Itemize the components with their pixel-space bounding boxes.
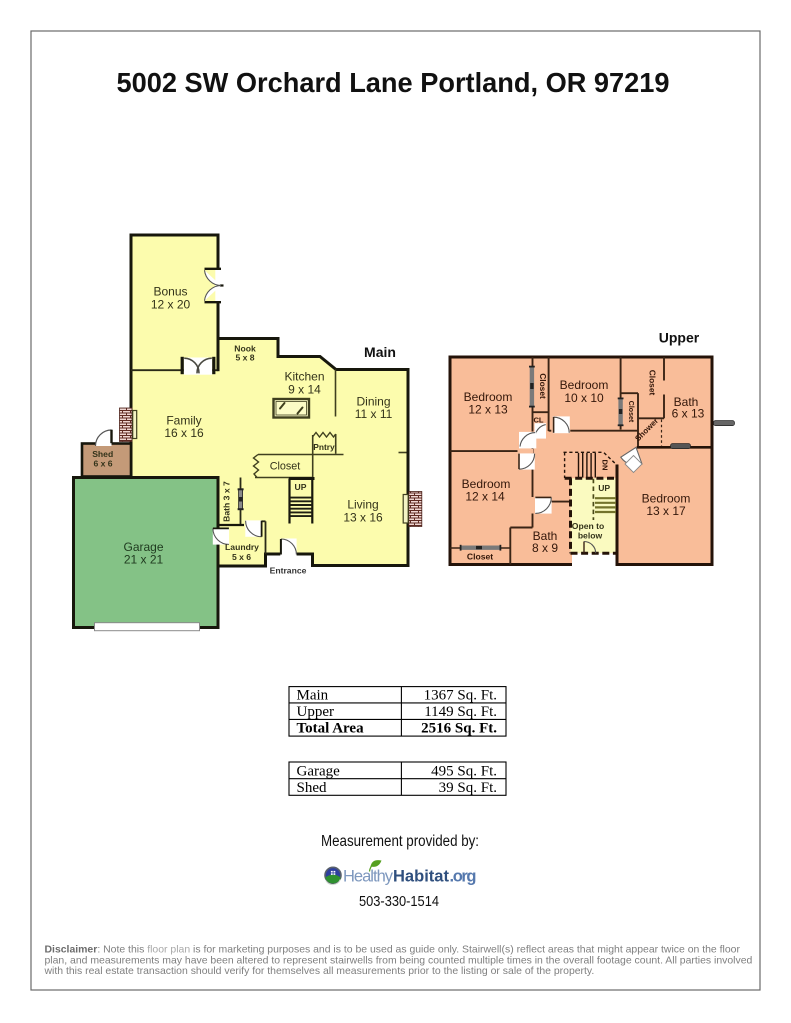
svg-text:plan, and measurements may hav: plan, and measurements may have been alt… xyxy=(45,955,753,966)
svg-text:Open to: Open to xyxy=(572,521,604,531)
svg-text:495 Sq. Ft.: 495 Sq. Ft. xyxy=(431,763,497,779)
svg-text:12 x 13: 12 x 13 xyxy=(468,403,508,417)
svg-text:11 x 11: 11 x 11 xyxy=(355,407,393,421)
svg-text:Living: Living xyxy=(347,498,378,512)
svg-text:Closet: Closet xyxy=(270,461,301,473)
svg-text:Laundry: Laundry xyxy=(225,542,259,552)
svg-text:Disclaimer: Note this floor pl: Disclaimer: Note this floor plan is for … xyxy=(45,945,741,956)
svg-text:Closet: Closet xyxy=(627,401,634,423)
svg-text:Bonus: Bonus xyxy=(153,285,187,299)
svg-text:Measurement provided by:: Measurement provided by: xyxy=(321,833,479,850)
svg-text:9 x 14: 9 x 14 xyxy=(288,383,321,397)
svg-text:Shed: Shed xyxy=(297,780,328,796)
svg-text:Pntry: Pntry xyxy=(313,442,335,452)
svg-text:Bath 3 x 7: Bath 3 x 7 xyxy=(222,481,232,522)
svg-text:1149 Sq. Ft.: 1149 Sq. Ft. xyxy=(424,704,497,720)
svg-text:6 x 13: 6 x 13 xyxy=(672,407,705,421)
svg-text:Main: Main xyxy=(297,688,329,704)
svg-text:8 x 9: 8 x 9 xyxy=(532,541,558,555)
svg-text:Closet: Closet xyxy=(538,373,548,399)
svg-text:12 x 14: 12 x 14 xyxy=(465,490,505,504)
svg-text:with this real estate transact: with this real estate transaction should… xyxy=(44,966,595,977)
svg-text:Garage: Garage xyxy=(297,763,341,779)
svg-text:16 x 16: 16 x 16 xyxy=(164,426,204,440)
svg-text:13 x 16: 13 x 16 xyxy=(343,511,383,525)
svg-text:10 x 10: 10 x 10 xyxy=(564,391,604,405)
svg-text:CL: CL xyxy=(533,415,543,424)
svg-text:below: below xyxy=(578,531,603,541)
svg-text:Bedroom: Bedroom xyxy=(560,378,609,392)
svg-text:UP: UP xyxy=(295,482,307,492)
svg-text:DN: DN xyxy=(601,460,610,471)
svg-text:Entrance: Entrance xyxy=(270,566,307,576)
svg-text:Upper: Upper xyxy=(659,330,700,346)
svg-text:Upper: Upper xyxy=(297,704,335,720)
svg-text:5 x 8: 5 x 8 xyxy=(235,352,254,362)
svg-text:1367 Sq. Ft.: 1367 Sq. Ft. xyxy=(424,688,497,704)
svg-text:5002 SW Orchard Lane Portland,: 5002 SW Orchard Lane Portland, OR 97219 xyxy=(117,67,670,98)
svg-text:Main: Main xyxy=(364,344,396,360)
svg-text:Closet: Closet xyxy=(648,370,658,396)
svg-text:Kitchen: Kitchen xyxy=(284,370,324,384)
svg-text:2516 Sq. Ft.: 2516 Sq. Ft. xyxy=(421,721,497,737)
svg-text:12 x 20: 12 x 20 xyxy=(151,298,191,312)
svg-text:503-330-1514: 503-330-1514 xyxy=(359,894,439,910)
svg-text:Closet: Closet xyxy=(467,551,493,561)
svg-text:Total Area: Total Area xyxy=(297,721,365,737)
svg-text:Shed: Shed xyxy=(92,449,113,459)
svg-text:UP: UP xyxy=(598,483,610,493)
svg-text:5 x 6: 5 x 6 xyxy=(232,552,251,562)
svg-text:13 x 17: 13 x 17 xyxy=(646,504,686,518)
svg-text:6 x 6: 6 x 6 xyxy=(93,459,112,469)
svg-text:21 x 21: 21 x 21 xyxy=(124,553,164,567)
svg-text:39 Sq. Ft.: 39 Sq. Ft. xyxy=(439,780,497,796)
svg-text:HealthyHabitat.org: HealthyHabitat.org xyxy=(343,868,477,886)
